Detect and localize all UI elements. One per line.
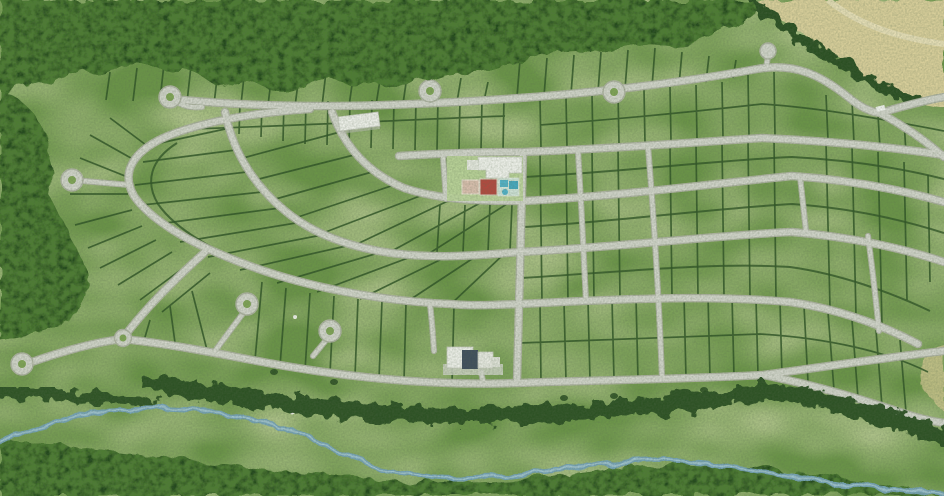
aerial-render <box>0 0 944 496</box>
scene-svg <box>0 0 944 496</box>
photo-grain <box>0 0 944 496</box>
scene-content <box>0 0 944 496</box>
